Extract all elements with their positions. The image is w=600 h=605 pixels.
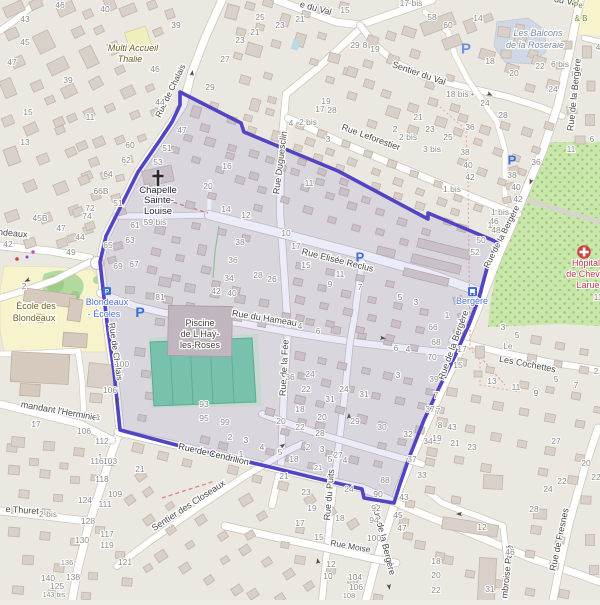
svg-text:P: P <box>461 40 471 57</box>
svg-text:18: 18 <box>335 513 345 523</box>
svg-text:10: 10 <box>323 571 333 581</box>
svg-text:11: 11 <box>594 292 600 302</box>
svg-text:28: 28 <box>327 105 337 115</box>
svg-text:1: 1 <box>445 310 450 320</box>
svg-text:23: 23 <box>467 442 477 452</box>
svg-text:4: 4 <box>596 42 600 52</box>
svg-text:de la Roseraie: de la Roseraie <box>506 40 564 50</box>
svg-text:École des: École des <box>16 301 56 311</box>
svg-text:Multi Accueil: Multi Accueil <box>108 43 159 53</box>
svg-text:39: 39 <box>171 20 181 30</box>
svg-text:21: 21 <box>413 112 423 122</box>
svg-text:47: 47 <box>56 223 66 233</box>
svg-text:28: 28 <box>498 110 508 120</box>
svg-text:116: 116 <box>90 456 104 466</box>
svg-text:130: 130 <box>75 535 89 545</box>
svg-text:4: 4 <box>298 321 303 331</box>
svg-text:63: 63 <box>125 235 135 245</box>
svg-text:16: 16 <box>222 161 232 171</box>
svg-text:106: 106 <box>77 426 91 436</box>
svg-text:12: 12 <box>477 522 487 532</box>
svg-text:3: 3 <box>396 370 401 380</box>
svg-text:117: 117 <box>100 529 114 539</box>
svg-text:50: 50 <box>476 235 486 245</box>
svg-text:47: 47 <box>177 125 187 135</box>
svg-text:15: 15 <box>301 260 311 270</box>
svg-text:42: 42 <box>465 172 475 182</box>
svg-text:74: 74 <box>82 211 92 221</box>
svg-text:21: 21 <box>295 14 305 24</box>
svg-text:14: 14 <box>221 204 231 214</box>
svg-text:15: 15 <box>340 5 350 15</box>
svg-text:108: 108 <box>343 591 356 600</box>
svg-text:32: 32 <box>403 429 413 439</box>
svg-text:7: 7 <box>434 390 439 400</box>
svg-text:20: 20 <box>203 181 213 191</box>
svg-text:24: 24 <box>480 98 490 108</box>
svg-text:5: 5 <box>515 330 520 340</box>
svg-text:- Écoles: - Écoles <box>88 309 121 319</box>
svg-text:60: 60 <box>443 20 453 30</box>
svg-text:59 bis: 59 bis <box>144 217 167 227</box>
svg-text:Sainte-: Sainte- <box>144 195 174 206</box>
svg-text:29: 29 <box>350 40 360 50</box>
svg-text:65: 65 <box>103 240 113 250</box>
svg-text:11: 11 <box>305 178 314 188</box>
svg-text:95: 95 <box>199 413 209 423</box>
svg-text:136: 136 <box>61 558 74 567</box>
svg-text:30: 30 <box>377 422 387 432</box>
svg-text:24: 24 <box>344 484 354 494</box>
svg-text:40: 40 <box>227 288 237 298</box>
svg-text:18 bis •: 18 bis • <box>446 89 474 99</box>
svg-text:22: 22 <box>535 61 545 71</box>
svg-text:104: 104 <box>348 572 362 582</box>
svg-text:106: 106 <box>103 385 117 395</box>
svg-text:Larue: Larue <box>576 280 599 290</box>
svg-text:51: 51 <box>162 143 172 153</box>
svg-text:111: 111 <box>99 499 112 509</box>
svg-text:128: 128 <box>81 516 95 526</box>
svg-text:81: 81 <box>155 292 165 302</box>
svg-text:27: 27 <box>551 436 561 446</box>
svg-text:44: 44 <box>155 97 165 107</box>
svg-text:les-Roses: les-Roses <box>180 340 221 350</box>
svg-text:2 bis: 2 bis <box>399 132 417 142</box>
svg-text:20: 20 <box>581 458 591 468</box>
svg-text:27: 27 <box>220 54 230 64</box>
svg-text:19: 19 <box>370 44 380 54</box>
svg-text:Piscine: Piscine <box>185 318 214 328</box>
svg-text:22: 22 <box>557 476 567 486</box>
svg-text:66: 66 <box>428 322 438 332</box>
svg-text:6: 6 <box>394 343 399 353</box>
svg-text:45: 45 <box>393 510 403 520</box>
svg-text:124: 124 <box>78 495 92 505</box>
svg-text:13: 13 <box>20 137 30 147</box>
svg-text:de L Haÿ-: de L Haÿ- <box>181 329 220 339</box>
svg-text:37: 37 <box>407 454 417 464</box>
svg-text:51: 51 <box>113 198 123 208</box>
svg-text:92: 92 <box>371 503 381 513</box>
svg-text:43: 43 <box>399 492 409 502</box>
svg-text:4: 4 <box>289 118 294 128</box>
svg-text:38: 38 <box>460 147 470 157</box>
svg-text:12: 12 <box>241 210 251 220</box>
svg-text:21: 21 <box>314 463 322 472</box>
svg-text:44: 44 <box>75 232 85 242</box>
svg-text:11: 11 <box>512 382 521 392</box>
svg-text:39: 39 <box>429 374 439 384</box>
svg-text:11: 11 <box>336 269 345 279</box>
svg-text:19: 19 <box>321 96 331 106</box>
svg-text:143 bis: 143 bis <box>43 592 66 599</box>
svg-text:34: 34 <box>224 273 234 283</box>
svg-text:100: 100 <box>367 533 381 543</box>
svg-text:17: 17 <box>291 241 301 251</box>
svg-text:18: 18 <box>431 556 441 566</box>
svg-text:31: 31 <box>325 394 335 404</box>
svg-text:7: 7 <box>436 406 441 416</box>
svg-text:7: 7 <box>574 380 579 390</box>
svg-text:23: 23 <box>235 35 245 45</box>
svg-text:49: 49 <box>66 247 76 257</box>
svg-text:109: 109 <box>108 489 122 499</box>
svg-text:33: 33 <box>417 470 427 480</box>
svg-text:69: 69 <box>113 261 123 271</box>
svg-text:70: 70 <box>427 352 437 362</box>
svg-text:4: 4 <box>343 455 348 465</box>
svg-text:11: 11 <box>86 112 95 122</box>
svg-text:P: P <box>356 250 365 265</box>
svg-text:28: 28 <box>315 428 325 438</box>
svg-text:42: 42 <box>513 194 523 204</box>
svg-text:3: 3 <box>244 435 249 445</box>
svg-text:36: 36 <box>531 157 541 167</box>
svg-text:21: 21 <box>279 471 289 481</box>
svg-text:100: 100 <box>115 359 129 369</box>
svg-text:Hôpital: Hôpital <box>572 258 600 268</box>
svg-text:14: 14 <box>473 13 483 23</box>
svg-text:23: 23 <box>301 487 311 497</box>
svg-text:de Chevill: de Chevill <box>566 269 600 279</box>
svg-text:66B: 66B <box>93 186 108 196</box>
svg-text:8: 8 <box>363 40 368 50</box>
svg-text:3: 3 <box>501 322 506 332</box>
svg-text:19: 19 <box>307 503 317 513</box>
svg-text:22: 22 <box>591 472 600 482</box>
svg-text:20: 20 <box>431 570 441 580</box>
svg-text:1 bis: 1 bis <box>491 207 509 217</box>
svg-text:119: 119 <box>100 540 114 550</box>
svg-text:94: 94 <box>369 515 379 525</box>
svg-text:37: 37 <box>425 404 435 414</box>
svg-text:3: 3 <box>320 444 325 454</box>
svg-text:38: 38 <box>507 170 517 180</box>
svg-text:2: 2 <box>393 124 398 134</box>
svg-text:61: 61 <box>130 220 140 230</box>
svg-text:2: 2 <box>594 366 599 376</box>
svg-text:18: 18 <box>485 56 495 66</box>
svg-text:20: 20 <box>276 416 286 426</box>
svg-text:19: 19 <box>432 433 442 443</box>
svg-text:17 bis: 17 bis <box>400 0 423 8</box>
svg-text:23: 23 <box>275 20 285 30</box>
svg-text:22: 22 <box>301 384 311 394</box>
svg-text:P: P <box>508 153 517 168</box>
svg-text:2: 2 <box>22 281 27 291</box>
svg-text:4: 4 <box>406 344 411 354</box>
svg-text:5: 5 <box>398 292 403 302</box>
svg-text:58: 58 <box>427 12 437 22</box>
svg-text:68: 68 <box>431 337 441 347</box>
svg-text:45: 45 <box>20 37 30 47</box>
svg-text:121: 121 <box>118 557 132 567</box>
svg-text:5: 5 <box>554 374 559 384</box>
svg-text:28: 28 <box>253 270 263 280</box>
svg-text:18: 18 <box>295 404 305 414</box>
svg-text:112: 112 <box>95 436 109 446</box>
svg-text:2 bis: 2 bis <box>299 117 317 127</box>
svg-text:22: 22 <box>431 585 441 595</box>
svg-text:38: 38 <box>235 237 245 247</box>
svg-text:29: 29 <box>205 82 215 92</box>
svg-text:31: 31 <box>359 389 369 399</box>
svg-text:2: 2 <box>306 442 311 452</box>
svg-text:25: 25 <box>443 132 453 142</box>
svg-text:46: 46 <box>55 0 65 10</box>
svg-text:36: 36 <box>228 255 238 265</box>
svg-text:Pe: Pe <box>573 1 583 10</box>
svg-text:42: 42 <box>3 239 13 249</box>
svg-text:90: 90 <box>373 489 383 499</box>
svg-text:24: 24 <box>305 369 315 379</box>
svg-text:20: 20 <box>509 68 519 78</box>
svg-text:43: 43 <box>20 14 30 24</box>
svg-text:20: 20 <box>317 412 327 422</box>
svg-text:21: 21 <box>250 27 260 37</box>
svg-text:2: 2 <box>228 432 233 442</box>
svg-text:Le: Le <box>504 342 513 351</box>
svg-text:31: 31 <box>485 584 495 594</box>
svg-text:138: 138 <box>66 572 80 582</box>
svg-text:9: 9 <box>328 279 333 289</box>
svg-text:25: 25 <box>255 12 265 22</box>
svg-text:Les Balcons: Les Balcons <box>513 28 563 38</box>
svg-text:15: 15 <box>314 532 324 542</box>
svg-text:11: 11 <box>567 144 576 154</box>
svg-text:3 bis: 3 bis <box>423 144 441 154</box>
svg-text:24: 24 <box>548 84 558 94</box>
svg-text:Louise: Louise <box>144 206 172 217</box>
svg-text:1: 1 <box>488 220 493 230</box>
svg-text:6 bis: 6 bis <box>551 59 569 69</box>
svg-text:43: 43 <box>447 422 457 432</box>
svg-text:& B: & B <box>575 14 588 23</box>
svg-text:12: 12 <box>326 559 336 569</box>
svg-text:17: 17 <box>31 419 41 429</box>
svg-text:40: 40 <box>511 182 521 192</box>
svg-text:46: 46 <box>505 547 515 557</box>
svg-text:10: 10 <box>281 228 291 238</box>
svg-text:118: 118 <box>95 474 109 484</box>
svg-text:17: 17 <box>295 518 305 528</box>
svg-text:28: 28 <box>529 504 539 514</box>
svg-text:39: 39 <box>63 75 73 85</box>
svg-text:7: 7 <box>358 282 363 292</box>
svg-text:15: 15 <box>23 107 33 117</box>
svg-text:64: 64 <box>103 169 113 179</box>
svg-text:36: 36 <box>285 372 295 382</box>
svg-text:88: 88 <box>380 475 390 485</box>
svg-text:36: 36 <box>465 122 475 132</box>
svg-text:40: 40 <box>100 4 110 14</box>
svg-text:47: 47 <box>397 523 407 533</box>
svg-text:Bergère: Bergère <box>456 296 488 306</box>
svg-text:13: 13 <box>487 376 497 386</box>
svg-text:5: 5 <box>328 454 333 464</box>
svg-text:2 bis: 2 bis <box>39 509 57 519</box>
svg-text:6: 6 <box>590 134 595 144</box>
svg-text:3: 3 <box>326 134 331 144</box>
svg-text:24: 24 <box>543 484 553 494</box>
svg-text:27: 27 <box>333 450 343 460</box>
svg-text:1: 1 <box>96 412 101 422</box>
svg-text:P: P <box>135 304 144 320</box>
svg-text:60: 60 <box>125 140 135 150</box>
svg-text:3: 3 <box>414 297 419 307</box>
svg-text:46: 46 <box>150 64 160 74</box>
svg-text:4: 4 <box>260 442 265 452</box>
svg-text:47: 47 <box>7 57 17 67</box>
svg-text:40: 40 <box>463 160 473 170</box>
svg-text:67: 67 <box>129 259 139 269</box>
svg-text:9: 9 <box>534 388 539 398</box>
svg-text:17: 17 <box>457 344 467 354</box>
svg-text:22: 22 <box>295 422 305 432</box>
svg-text:29: 29 <box>350 416 360 426</box>
svg-text:103: 103 <box>103 456 117 466</box>
svg-text:48: 48 <box>491 225 501 235</box>
svg-text:8: 8 <box>438 420 443 430</box>
svg-text:26: 26 <box>267 274 277 284</box>
svg-text:99: 99 <box>220 417 230 427</box>
svg-text:Blondeaux: Blondeaux <box>86 297 129 307</box>
svg-text:Thalie: Thalie <box>118 54 143 64</box>
svg-text:93: 93 <box>199 399 209 409</box>
svg-text:23: 23 <box>425 124 435 134</box>
svg-text:18: 18 <box>289 454 299 464</box>
svg-text:62: 62 <box>121 155 131 165</box>
svg-text:P: P <box>105 289 110 296</box>
svg-text:24: 24 <box>339 384 349 394</box>
svg-text:45B: 45B <box>32 213 47 223</box>
svg-text:6: 6 <box>316 326 321 336</box>
svg-text:5: 5 <box>278 447 283 457</box>
svg-text:52: 52 <box>470 247 480 257</box>
svg-text:15: 15 <box>453 360 463 370</box>
svg-text:1 bis: 1 bis <box>443 184 461 194</box>
svg-text:42: 42 <box>211 286 221 296</box>
svg-text:1: 1 <box>239 449 244 459</box>
svg-text:125: 125 <box>50 581 64 591</box>
svg-text:53: 53 <box>153 157 163 167</box>
svg-text:Blondeaux: Blondeaux <box>13 313 56 323</box>
svg-text:21: 21 <box>135 464 145 474</box>
svg-text:21: 21 <box>450 438 460 448</box>
